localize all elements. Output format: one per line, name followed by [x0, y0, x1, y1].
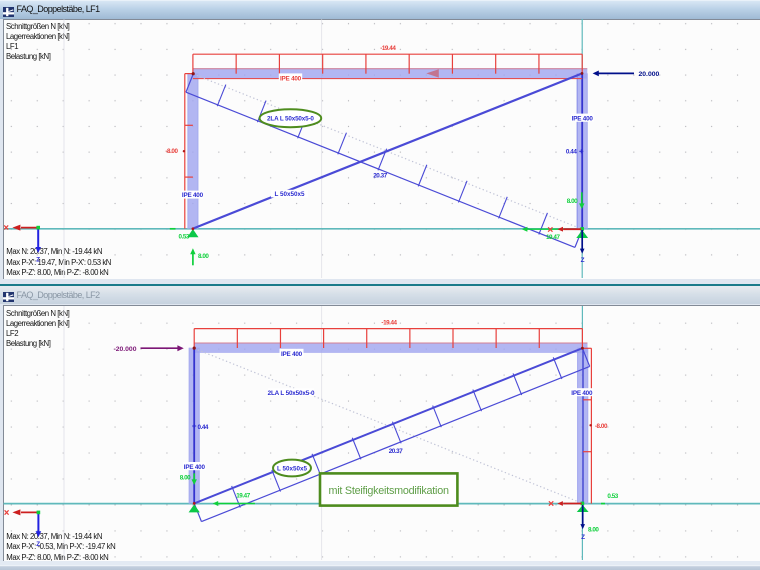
svg-text:IPE 400: IPE 400	[182, 192, 204, 199]
svg-text:8.00: 8.00	[198, 253, 209, 260]
svg-text:8.00: 8.00	[567, 198, 578, 205]
svg-text:-8.00: -8.00	[165, 148, 178, 155]
svg-text:8.00: 8.00	[180, 475, 191, 482]
svg-text:-20.000: -20.000	[113, 346, 136, 353]
svg-text:-8.00: -8.00	[595, 423, 608, 430]
svg-text:0.44: 0.44	[198, 424, 209, 431]
svg-text:0.44: 0.44	[566, 149, 577, 156]
svg-text:IPE 400: IPE 400	[281, 351, 303, 358]
svg-text:2LA L 50x50x5-0: 2LA L 50x50x5-0	[268, 390, 315, 397]
svg-text:-19.44: -19.44	[380, 45, 396, 52]
svg-text:IPE 400: IPE 400	[572, 115, 594, 122]
svg-text:0.53: 0.53	[179, 233, 190, 240]
svg-text:Z: Z	[581, 534, 585, 541]
svg-text:Z: Z	[36, 541, 40, 548]
svg-text:20.000: 20.000	[639, 71, 660, 78]
svg-text:IPE 400: IPE 400	[184, 464, 206, 471]
svg-text:-19.44: -19.44	[381, 320, 397, 327]
svg-text:0.53: 0.53	[607, 493, 618, 500]
svg-text:IPE 400: IPE 400	[571, 390, 593, 397]
svg-text:Z: Z	[36, 257, 40, 264]
svg-text:mit Steifigkeitsmodifikation: mit Steifigkeitsmodifikation	[329, 485, 449, 497]
svg-text:Z: Z	[581, 257, 585, 264]
svg-text:IPE 400: IPE 400	[280, 75, 302, 82]
svg-text:20.37: 20.37	[389, 448, 403, 455]
svg-text:L 50x50x5: L 50x50x5	[275, 191, 305, 198]
svg-text:L 50x50x5: L 50x50x5	[277, 466, 307, 473]
svg-text:2LA L 50x50x5-0: 2LA L 50x50x5-0	[267, 116, 314, 123]
svg-text:19.47: 19.47	[236, 493, 250, 500]
svg-text:19.47: 19.47	[546, 234, 560, 241]
svg-text:20.37: 20.37	[373, 173, 387, 180]
svg-text:8.00: 8.00	[588, 526, 599, 533]
